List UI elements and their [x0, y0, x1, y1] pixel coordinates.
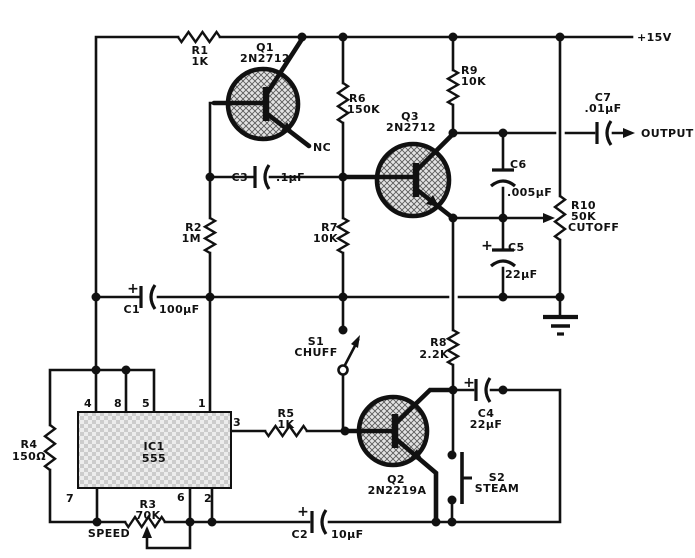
- r5-value: 1K: [278, 418, 295, 431]
- c7-value: .01μF: [584, 102, 621, 115]
- resistor-r7: [338, 218, 348, 253]
- ic1-pin-3: 3: [233, 416, 241, 429]
- r9-value: 10K: [461, 75, 486, 88]
- r4-value: 150Ω: [12, 450, 46, 463]
- r7-value: 10K: [313, 232, 338, 245]
- c5-ref: C5: [508, 241, 525, 254]
- c3-value: .1μF: [276, 171, 305, 184]
- resistor-r2: [205, 218, 215, 253]
- supply-label: +15V: [637, 31, 672, 44]
- switch-pivot: [339, 366, 348, 375]
- c5-polarity: +: [481, 238, 493, 254]
- resistor-r4: [45, 425, 55, 470]
- ic1-pin-5: 5: [142, 397, 150, 410]
- output-label: OUTPUT: [641, 127, 694, 140]
- c6-ref: C6: [510, 158, 527, 171]
- c1-value: 100μF: [159, 303, 200, 316]
- r10-function: CUTOFF: [568, 221, 619, 234]
- c1-polarity: +: [127, 281, 139, 297]
- ic1-pin-6: 6: [177, 491, 185, 504]
- switch-contact: [448, 496, 457, 505]
- r8-value: 2.2K: [419, 348, 449, 361]
- resistor-r1: [178, 32, 220, 42]
- schematic-canvas: +15V OUTPUT NC R1 1K Q1 2N2712 R6 150K R…: [0, 0, 695, 558]
- resistor-r8: [448, 330, 458, 365]
- ic1-pin-4: 4: [84, 397, 92, 410]
- capacitor-c3: [255, 165, 269, 189]
- capacitor-c1: [141, 285, 155, 309]
- r3-value: 70K: [135, 509, 160, 522]
- resistor-r9: [448, 70, 458, 105]
- ic1-pin-7: 7: [66, 492, 74, 505]
- switch-contact: [339, 326, 348, 335]
- capacitor-c7: [597, 121, 611, 145]
- q1-part: 2N2712: [240, 52, 290, 65]
- ic1-pin-8: 8: [114, 397, 122, 410]
- r6-value: 150K: [347, 103, 380, 116]
- c4-polarity: +: [463, 375, 475, 391]
- c1-ref: C1: [123, 303, 140, 316]
- c2-value: 10μF: [331, 528, 364, 541]
- r1-value: 1K: [192, 55, 209, 68]
- resistor-r10-potentiometer: [555, 196, 565, 240]
- ic1-pin-1: 1: [198, 397, 206, 410]
- switch-s1: [339, 326, 361, 375]
- capacitor-c6: [491, 170, 515, 186]
- nc-label: NC: [313, 141, 331, 154]
- ground-icon: [543, 317, 578, 334]
- r3-function: SPEED: [88, 527, 130, 540]
- switch-contact: [448, 451, 457, 460]
- output-arrow-icon: [623, 128, 635, 138]
- capacitor-c4: [476, 378, 490, 402]
- c6-value: .005μF: [507, 186, 552, 199]
- c2-polarity: +: [297, 504, 309, 520]
- q2-part: 2N2219A: [368, 484, 427, 497]
- circuit-schematic: +15V OUTPUT NC R1 1K Q1 2N2712 R6 150K R…: [0, 0, 695, 558]
- c5-value: 22μF: [505, 268, 538, 281]
- c4-value: 22μF: [470, 418, 503, 431]
- s1-function: CHUFF: [294, 346, 337, 359]
- switch-s2: [448, 451, 473, 505]
- c3-ref: C3: [231, 171, 248, 184]
- r3-wiper-arrow-icon: [142, 526, 152, 538]
- s2-function: STEAM: [475, 482, 519, 495]
- ic1-part: 555: [142, 452, 166, 465]
- switch-lever-arrow-icon: [351, 335, 360, 348]
- c2-ref: C2: [291, 528, 308, 541]
- r2-value: 1M: [182, 232, 201, 245]
- q3-part: 2N2712: [386, 121, 436, 134]
- ic1-pin-2: 2: [204, 492, 212, 505]
- capacitor-c2: [312, 510, 326, 534]
